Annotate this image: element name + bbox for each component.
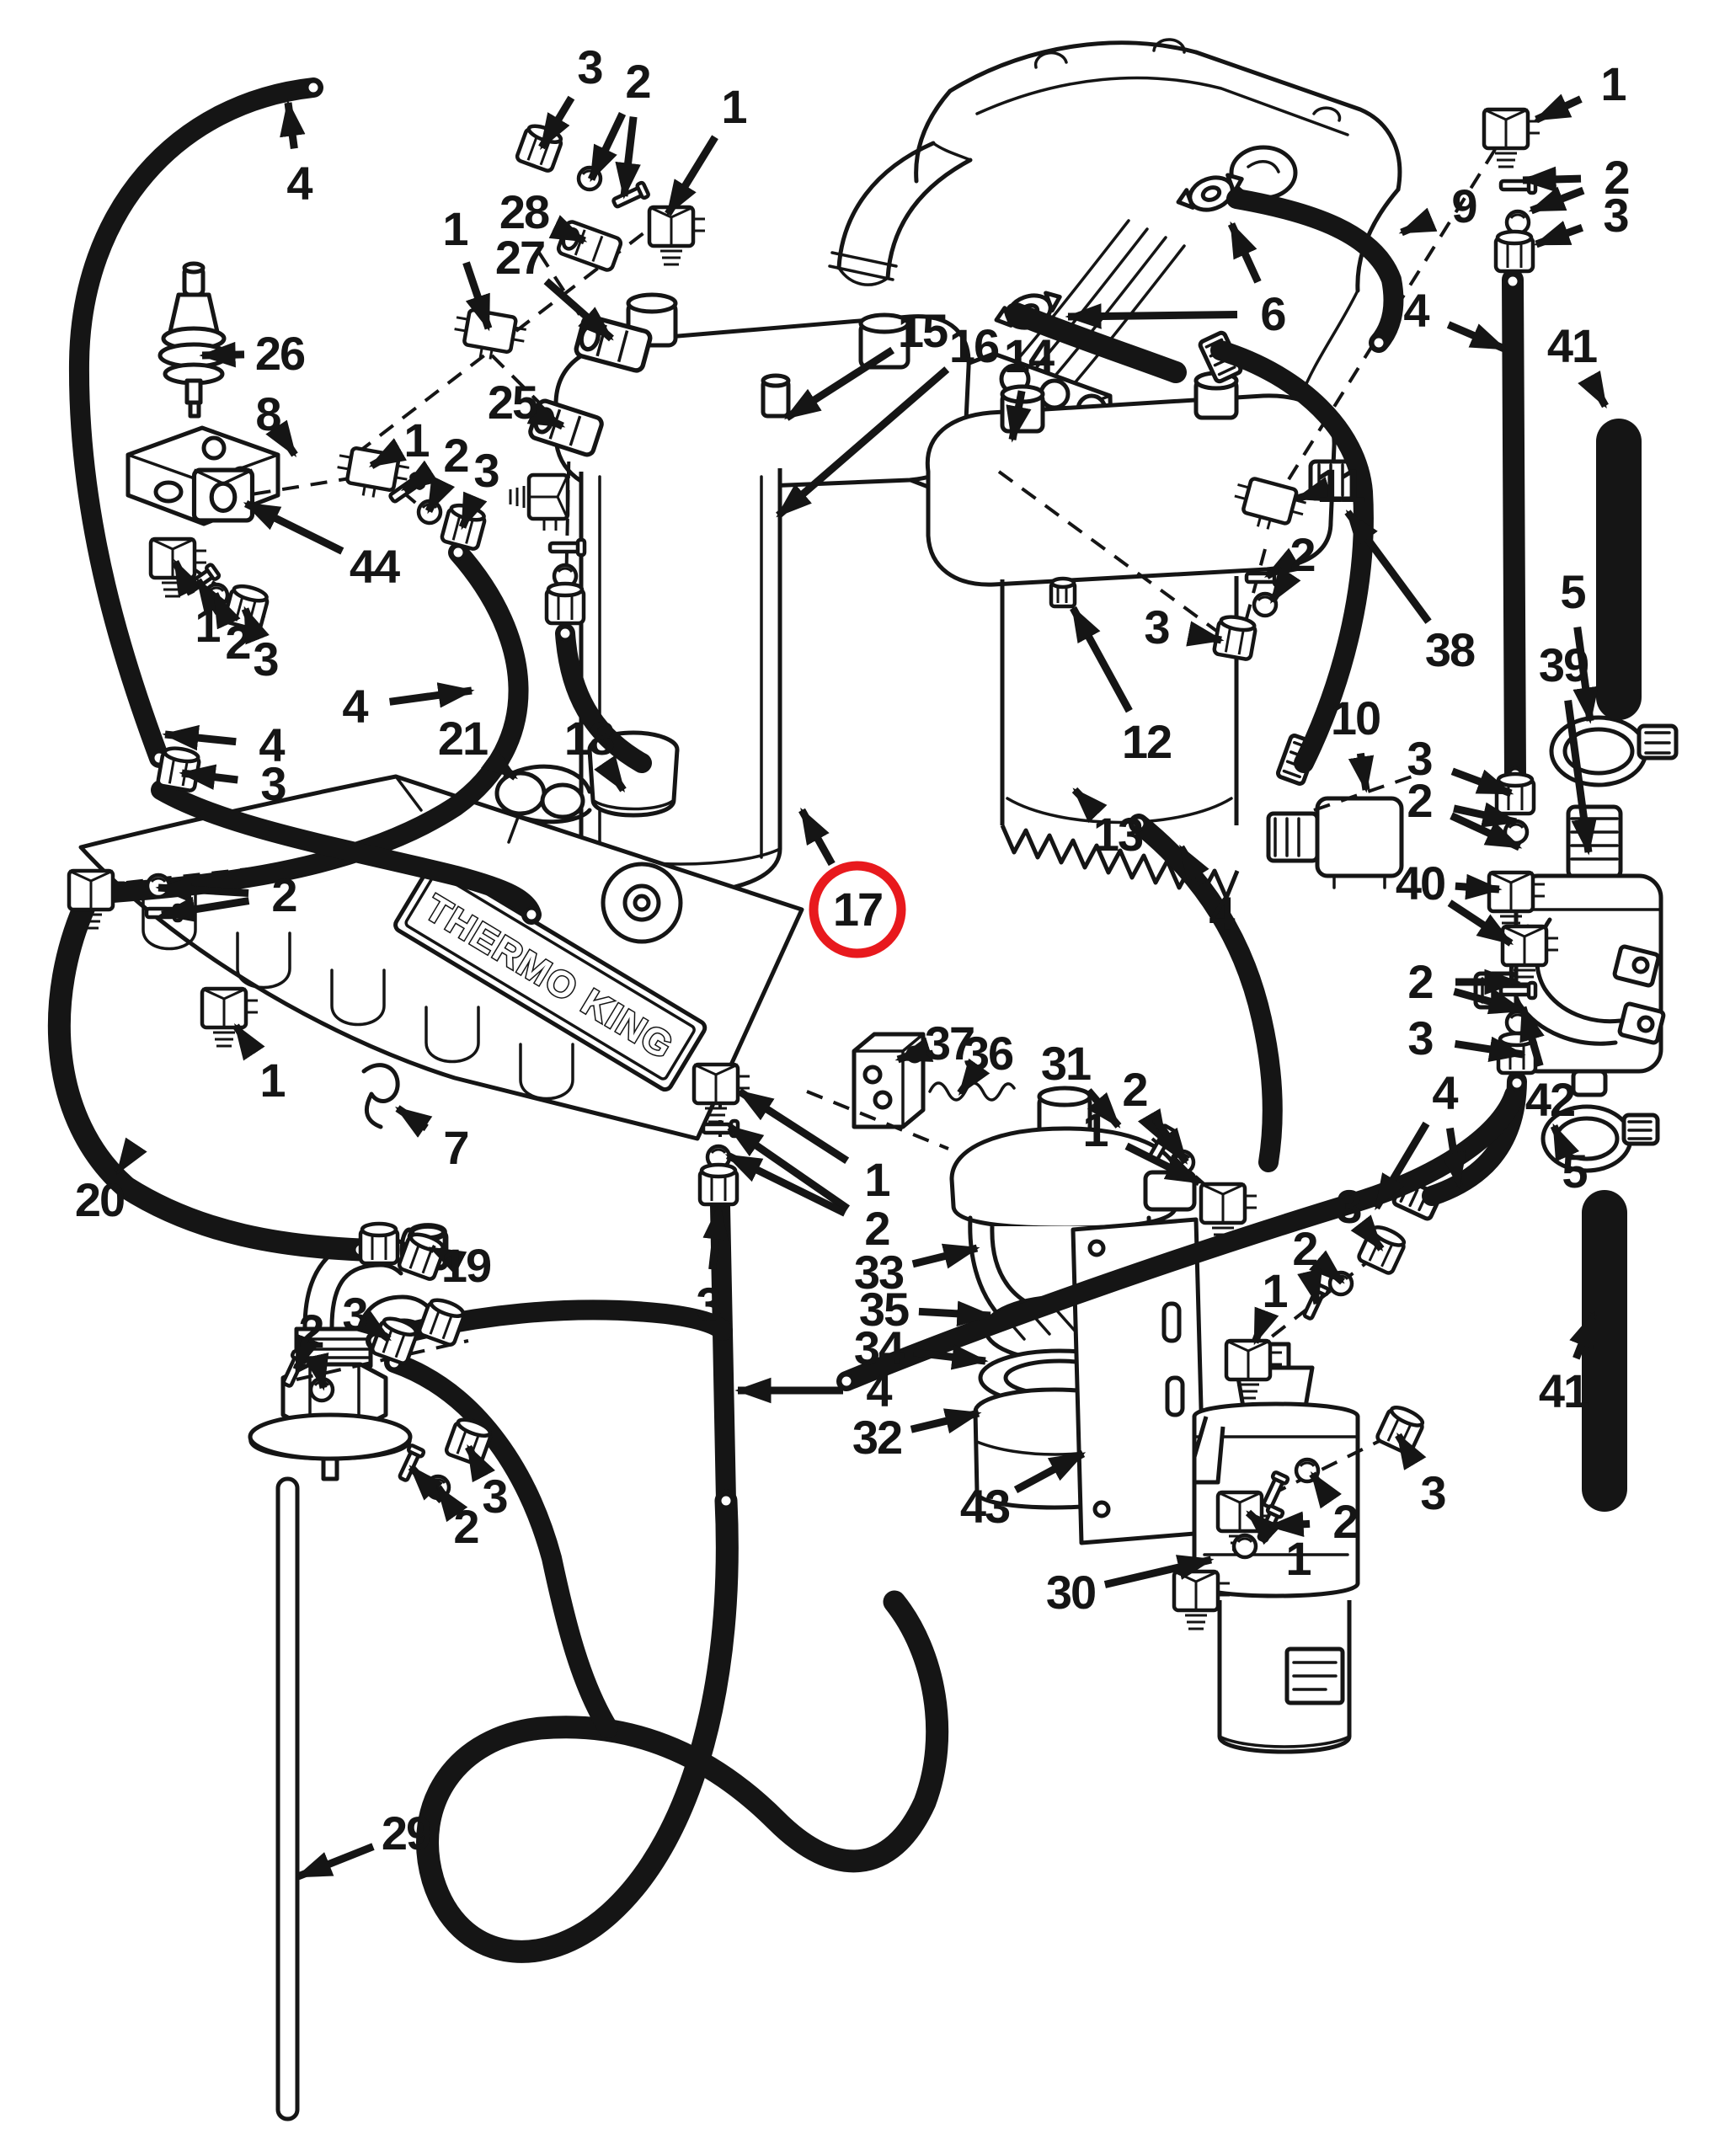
callout-arrow — [1536, 227, 1583, 244]
callout-number: 19 — [441, 1239, 491, 1292]
callout-arrow — [898, 1054, 916, 1059]
callout-36: 36 — [960, 1027, 1013, 1093]
callout-number: 9 — [1451, 179, 1476, 232]
callout-number: 7 — [443, 1121, 467, 1174]
callout-arrow — [919, 1311, 990, 1315]
callout-number: 17 — [833, 883, 882, 936]
callout-arrow — [236, 1026, 253, 1051]
callout-arrow — [165, 734, 236, 742]
callout-arrow — [1068, 315, 1237, 317]
callout-arrow — [1312, 1283, 1317, 1304]
street-elbow-10 — [1268, 798, 1402, 888]
callout-number: 3 — [1407, 1011, 1433, 1065]
callout-17: 17 — [802, 810, 901, 953]
callout-29: 29 — [298, 1806, 431, 1876]
callout-arrow — [1531, 190, 1583, 211]
hose-open-end — [720, 1495, 733, 1508]
callout-number: 1 — [1082, 1103, 1108, 1156]
callout-number: 16 — [949, 319, 999, 372]
callout-number: 4 — [286, 157, 312, 210]
nut-fitting — [1496, 232, 1533, 271]
callout-number: 2 — [1292, 1222, 1316, 1275]
plug-fitting — [1051, 579, 1075, 606]
callout-arrow — [668, 137, 715, 214]
callout-arrow — [431, 1248, 435, 1250]
callout-1: 1 — [236, 1026, 285, 1107]
tee-fitting — [451, 307, 528, 365]
callout-number: 26 — [255, 327, 305, 380]
callout-8: 8 — [255, 387, 295, 455]
electric-fuel-pump-30 — [1194, 1344, 1358, 1752]
elbow-fitting — [649, 207, 705, 264]
callout-number: 40 — [1396, 857, 1444, 910]
callout-arrow — [547, 281, 611, 339]
callout-arrow — [1231, 224, 1258, 282]
callout-arrow — [202, 355, 244, 355]
nut-fitting — [158, 746, 200, 792]
callout-number: 30 — [1046, 1566, 1095, 1619]
callout-number: 42 — [1525, 1073, 1574, 1126]
callout-number: 27 — [495, 231, 544, 284]
callout-number: 4 — [866, 1364, 892, 1417]
pin-fitting — [1247, 570, 1281, 585]
callout-arrow — [298, 1847, 373, 1876]
callout-arrow — [1402, 220, 1431, 232]
callout-arrow — [913, 1248, 977, 1264]
callout-number: 1 — [403, 414, 429, 467]
callout-41: 41 — [1547, 319, 1605, 406]
callout-number: 5 — [1562, 1145, 1587, 1198]
adapter-fitting — [557, 221, 622, 272]
callout-10: 10 — [1331, 691, 1380, 790]
callout-arrow — [1272, 584, 1283, 601]
callout-number: 3 — [482, 1470, 507, 1523]
callout-number: 4 — [342, 680, 368, 733]
callout-4: 4 — [1403, 284, 1504, 349]
callout-number: 2 — [271, 868, 296, 921]
callout-number: 29 — [382, 1806, 431, 1860]
callout-number: 2 — [625, 55, 649, 108]
hose-4-right-vertical — [1513, 280, 1515, 776]
callout-1: 1 — [1255, 1264, 1287, 1342]
callout-3: 3 — [1398, 1435, 1445, 1519]
callout-number: 3 — [253, 632, 278, 686]
callout-3: 3 — [542, 40, 602, 147]
callout-number: 41 — [1547, 319, 1597, 372]
callout-arrow — [296, 1364, 298, 1369]
callout-number: 2 — [1407, 955, 1432, 1008]
callout-number: 11 — [1316, 459, 1364, 512]
callout-number: 3 — [1336, 1180, 1361, 1233]
callout-number: 1 — [1262, 1264, 1287, 1317]
callout-arrow — [1449, 325, 1504, 349]
callout-arrow — [1536, 99, 1581, 120]
callout-number: 3 — [1144, 600, 1169, 654]
callout-arrow — [1270, 1524, 1310, 1526]
nut-fitting — [700, 1165, 737, 1204]
callout-number: 6 — [1260, 287, 1285, 340]
callout-arrow — [1073, 608, 1129, 711]
elbow-fitting — [510, 475, 568, 531]
callout-number: 1 — [259, 1054, 285, 1107]
callout-arrow — [1360, 754, 1366, 790]
callout-arrow — [591, 114, 622, 179]
callout-arrow — [911, 1413, 979, 1429]
elbow-fitting — [202, 989, 258, 1046]
callout-number: 21 — [438, 712, 488, 765]
callout-number: 2 — [443, 429, 467, 482]
callout-number: 18 — [564, 712, 614, 765]
callout-44: 44 — [246, 504, 400, 593]
callout-number: 3 — [577, 40, 602, 93]
pin-fitting — [550, 540, 585, 555]
pin-fitting — [611, 182, 649, 211]
callout-number: 36 — [964, 1027, 1013, 1080]
callout-arrow — [246, 504, 342, 551]
callout-number: 3 — [1603, 189, 1628, 242]
callout-number: 1 — [1600, 57, 1626, 110]
hose-open-end — [307, 82, 320, 94]
callout-arrow — [383, 1335, 389, 1339]
callout-number: 38 — [1425, 623, 1475, 676]
callout-1: 1 — [442, 202, 489, 328]
callout-number: 43 — [960, 1480, 1010, 1533]
callout-number: 14 — [1004, 329, 1055, 382]
callout-arrow — [390, 691, 472, 702]
union-fitting — [195, 470, 253, 520]
callout-arrow — [318, 1366, 323, 1388]
nut-fitting — [515, 122, 563, 172]
callout-arrow — [287, 444, 295, 455]
callout-6: 6 — [1068, 224, 1285, 340]
hose-open-end — [1373, 337, 1386, 350]
callout-41: 41 — [1539, 1314, 1594, 1417]
callout-number: 44 — [350, 540, 400, 593]
callout-20: 20 — [75, 1171, 124, 1226]
callout-arrow — [398, 1108, 426, 1128]
fuel-filter-primary — [556, 295, 969, 893]
callout-7: 7 — [398, 1108, 468, 1174]
hose-open-end — [841, 1375, 853, 1388]
callout-arrow — [1523, 179, 1581, 180]
callout-number: 31 — [1041, 1037, 1091, 1090]
callout-number: 3 — [1420, 1466, 1445, 1519]
callout-number: 8 — [255, 387, 280, 440]
callout-arrow — [1267, 573, 1272, 576]
hose-4-center-vertical — [720, 1206, 726, 1501]
callout-arrow — [118, 1171, 119, 1172]
callout-arrow — [1554, 1126, 1560, 1139]
hose-bl-lower — [394, 1363, 608, 1728]
callout-number: 4 — [1403, 284, 1429, 337]
callout-9: 9 — [1402, 179, 1476, 232]
callout-arrow — [740, 1091, 847, 1161]
callout-arrow — [624, 117, 633, 196]
callout-number: 1 — [721, 80, 746, 133]
elbow-fitting — [1484, 109, 1540, 167]
exploded-parts-diagram: THERMO KING — [0, 0, 1714, 2156]
callout-number: 4 — [1432, 1066, 1458, 1119]
ball-fitting — [1234, 1535, 1256, 1557]
callout-number: 41 — [1539, 1364, 1589, 1417]
callout-number: 25 — [488, 376, 537, 429]
callout-number: 2 — [1332, 1495, 1357, 1548]
callout-number: 1 — [442, 202, 467, 255]
callout-number: 1 — [1285, 1532, 1311, 1585]
hose-open-end — [1511, 1077, 1524, 1090]
callout-arrow — [1589, 377, 1605, 406]
callout-arrow — [802, 810, 832, 864]
callout-number: 3 — [342, 1288, 367, 1341]
callout-number: 3 — [696, 1278, 721, 1331]
hose-open-end — [559, 627, 572, 640]
nut-fitting — [547, 584, 584, 623]
callout-number: 20 — [75, 1173, 124, 1226]
callout-4: 4 — [738, 1364, 892, 1417]
callout-number: 2 — [225, 616, 249, 669]
callout-4: 4 — [286, 103, 312, 210]
callout-arrow — [288, 103, 294, 148]
callout-arrow — [1455, 886, 1499, 889]
hose-open-end — [526, 909, 538, 921]
callout-32: 32 — [852, 1411, 979, 1464]
hose-open-end — [1507, 275, 1519, 288]
hook-7 — [364, 1065, 398, 1127]
callout-number: 1 — [864, 1153, 889, 1206]
callout-1: 1 — [668, 80, 746, 214]
callout-1: 1 — [1536, 57, 1626, 120]
callout-number: 32 — [852, 1411, 901, 1464]
callout-number: 4 — [1209, 887, 1235, 940]
callout-arrow — [1297, 496, 1306, 499]
callout-number: 39 — [1539, 638, 1589, 691]
callout-number: 15 — [898, 304, 948, 357]
callout-arrow — [1075, 790, 1093, 809]
callout-3: 3 — [1536, 189, 1628, 244]
callout-number: 2 — [298, 1305, 323, 1358]
callout-number: 2 — [1290, 528, 1314, 581]
nut-fitting — [1358, 1223, 1408, 1274]
spring-36 — [930, 1083, 1014, 1100]
callout-number: 13 — [1093, 808, 1143, 861]
parts-diagram-page: THERMO KING — [0, 0, 1714, 2156]
oil-pressure-sender — [160, 264, 227, 416]
callout-number: 2 — [1407, 774, 1431, 827]
callout-number: 3 — [473, 444, 499, 497]
callout-number: 2 — [453, 1500, 478, 1553]
callout-number: 3 — [260, 757, 286, 810]
callout-number: 5 — [1560, 565, 1585, 618]
hose-4-bottom-loop — [428, 1501, 937, 1951]
nut-fitting — [360, 1224, 398, 1263]
callout-number: 12 — [1122, 715, 1171, 768]
callout-number: 10 — [1331, 691, 1380, 744]
callout-number: 2 — [1122, 1063, 1146, 1116]
